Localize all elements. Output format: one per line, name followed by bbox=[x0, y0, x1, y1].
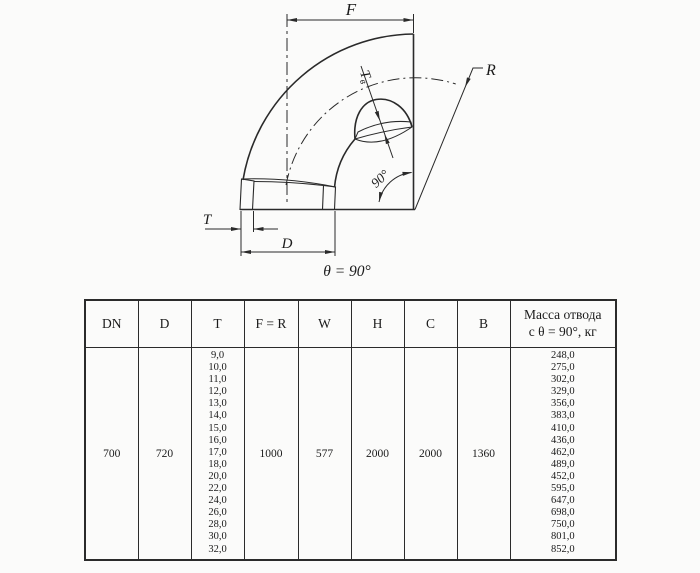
col-header-d: D bbox=[138, 300, 191, 348]
r-label: R bbox=[485, 62, 496, 79]
inner-arc bbox=[335, 139, 356, 188]
elbow-technical-drawing: F R Tв 90° T bbox=[0, 0, 700, 296]
t-dimension: T bbox=[203, 211, 278, 256]
elbow-dimensions-table: DN D T F = R W H C B Масса отводас θ = 9… bbox=[84, 299, 617, 561]
d-dimension: D bbox=[241, 211, 335, 256]
col-header-fr: F = R bbox=[244, 300, 298, 348]
f-label: F bbox=[345, 0, 357, 19]
cell-t-values: 9,010,011,012,013,014,015,016,017,018,02… bbox=[191, 348, 244, 561]
angle-label: 90° bbox=[368, 166, 393, 190]
col-header-w: W bbox=[298, 300, 351, 348]
col-header-dn: DN bbox=[85, 300, 138, 348]
cell-w: 577 bbox=[298, 348, 351, 561]
cell-b: 1360 bbox=[457, 348, 510, 561]
spec-sheet: F R Tв 90° T bbox=[0, 0, 700, 573]
wall-section-left bbox=[240, 179, 254, 210]
outer-arc bbox=[243, 34, 414, 180]
cell-dn: 700 bbox=[85, 348, 138, 561]
f-dimension: F bbox=[287, 0, 414, 33]
bottom-pipe-end bbox=[240, 179, 336, 210]
col-header-c: C bbox=[404, 300, 457, 348]
t-label: T bbox=[203, 212, 213, 228]
col-header-b: B bbox=[457, 300, 510, 348]
col-header-h: H bbox=[351, 300, 404, 348]
upper-pipe-end-dome bbox=[355, 99, 412, 142]
wall-section-right bbox=[323, 186, 336, 210]
tv-label: Tв bbox=[354, 69, 374, 87]
header-row: DN D T F = R W H C B Масса отводас θ = 9… bbox=[85, 300, 616, 348]
cell-h: 2000 bbox=[351, 348, 404, 561]
col-header-mass: Масса отводас θ = 90°, кг bbox=[510, 300, 616, 348]
cell-c: 2000 bbox=[404, 348, 457, 561]
cell-mass-values: 248,0275,0302,0329,0356,0383,0410,0436,0… bbox=[510, 348, 616, 561]
d-label: D bbox=[281, 236, 293, 252]
angle-annotation: 90° bbox=[368, 166, 413, 202]
cell-d: 720 bbox=[138, 348, 191, 561]
col-header-t: T bbox=[191, 300, 244, 348]
dome-outline bbox=[355, 99, 412, 139]
cell-fr: 1000 bbox=[244, 348, 298, 561]
theta-caption: θ = 90° bbox=[323, 263, 371, 280]
data-row: 700 720 9,010,011,012,013,014,015,016,01… bbox=[85, 348, 616, 561]
